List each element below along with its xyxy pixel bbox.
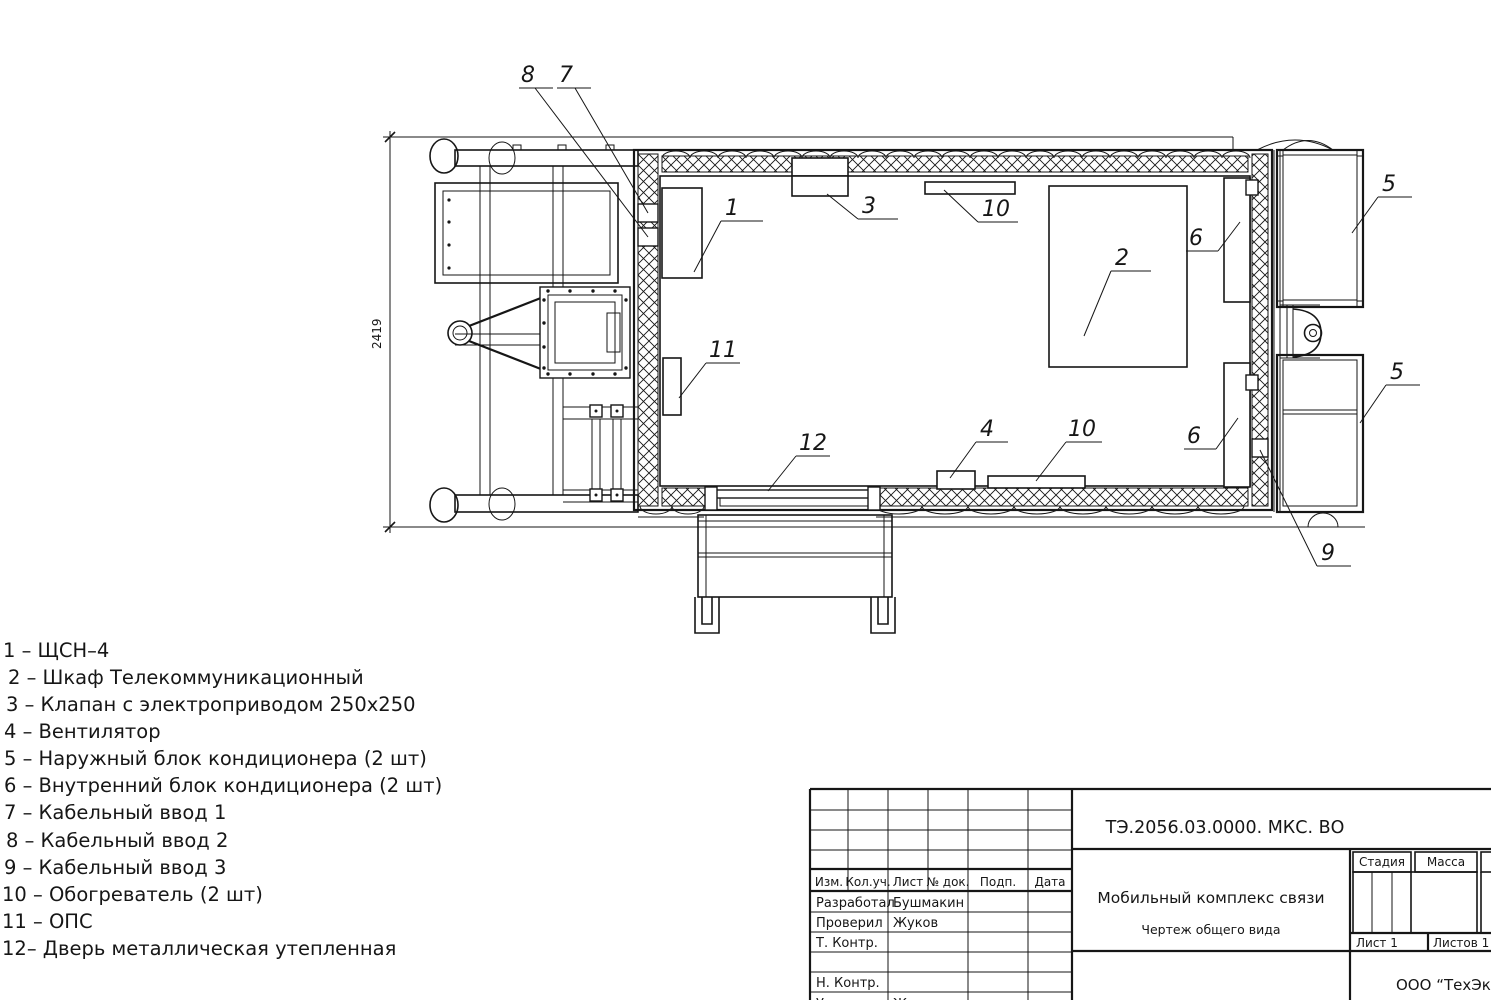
wheel-front-top — [430, 139, 458, 173]
svg-text:1: 1 — [725, 196, 739, 221]
cable-entry-3 — [1252, 439, 1268, 457]
wall-bottom-right — [873, 488, 1248, 506]
outdoor-ac-bottom — [1277, 355, 1363, 512]
callout-10-top: 10 — [944, 190, 1018, 222]
top-rail — [455, 150, 638, 166]
svg-text:6: 6 — [1189, 226, 1203, 251]
svg-text:12: 12 — [799, 431, 827, 456]
role-name: Жуков — [893, 916, 938, 931]
product-name: Мобильный комплекс связи — [1097, 889, 1324, 907]
role-label: Проверил — [816, 916, 883, 931]
dimension-2419: 2419 — [370, 131, 455, 533]
svg-text:5: 5 — [1382, 172, 1396, 197]
fire-alarm-ops — [663, 358, 681, 415]
svg-text:9: 9 — [1321, 541, 1335, 566]
general-view-drawing: 2419 — [0, 0, 1491, 1000]
legend-item: 1 – ЩСН–4 — [3, 639, 109, 662]
company-name: ООО “ТехЭксп — [1396, 976, 1491, 994]
valve-duct — [792, 158, 848, 176]
doc-number: ТЭ.2056.03.0000. МКС. ВО — [1105, 818, 1345, 838]
svg-text:6: 6 — [1187, 424, 1201, 449]
wheel-front-bottom — [430, 488, 458, 522]
callout-5-bottom: 5 — [1360, 360, 1420, 423]
power-board-schn4 — [662, 188, 702, 278]
stage-label: Стадия — [1359, 855, 1405, 869]
legend-item: 8 – Кабельный ввод 2 — [6, 829, 228, 852]
callout-3: 3 — [827, 194, 898, 219]
role-name: Бушмакин — [893, 896, 964, 911]
sheets-label: Листов 1 — [1433, 936, 1489, 950]
role-label: Т. Контр. — [815, 936, 878, 951]
col-podp: Подп. — [980, 875, 1016, 889]
wall-bottom-left — [662, 488, 707, 506]
legend-item: 10 – Обогреватель (2 шт) — [2, 883, 263, 906]
valve-electric — [792, 176, 848, 196]
doc-type: Чертеж общего вида — [1141, 922, 1280, 937]
svg-text:5: 5 — [1390, 360, 1404, 385]
indoor-ac-top — [1224, 178, 1250, 302]
heater-top — [925, 182, 1015, 194]
drawbar-hitch — [448, 287, 630, 378]
external-units — [1274, 141, 1363, 513]
dimension-label: 2419 — [370, 318, 384, 349]
col-doc: № док. — [927, 875, 970, 889]
insulated-door — [712, 490, 878, 498]
hitch-mount — [540, 287, 630, 378]
callout-4: 4 — [950, 417, 1008, 478]
role-label: Н. Контр. — [816, 976, 880, 991]
svg-text:4: 4 — [980, 417, 994, 442]
outdoor-ac-top — [1277, 150, 1363, 307]
legend-item: 5 – Наружный блок кондиционера (2 шт) — [4, 747, 427, 770]
frame-post-1 — [480, 166, 490, 495]
legend-item: 12– Дверь металлическая утепленная — [2, 937, 396, 960]
mass-label: Масса — [1427, 855, 1465, 869]
callout-10-bottom: 10 — [1036, 417, 1102, 481]
callout-11: 11 — [679, 338, 740, 398]
fan — [937, 471, 975, 489]
svg-text:11: 11 — [709, 338, 737, 363]
legend-item: 11 – ОПС — [2, 910, 93, 933]
legend-item: 7 – Кабельный ввод 1 — [4, 801, 226, 824]
callout-1: 1 — [694, 196, 763, 272]
title-block: Изм. Кол.уч. Лист № док. Подп. Дата Разр… — [810, 789, 1491, 1000]
callout-5-top: 5 — [1352, 172, 1412, 233]
legend-item: 9 – Кабельный ввод 3 — [4, 856, 226, 879]
interior-equipment — [662, 158, 1258, 489]
legend-item: 4 – Вентилятор — [4, 720, 161, 743]
telecom-cabinet — [1049, 186, 1187, 367]
hitch-eye — [448, 321, 472, 345]
heater-bottom — [988, 476, 1085, 488]
legend-list: 1 – ЩСН–4 2 – Шкаф Телекоммуникационный … — [2, 639, 442, 960]
wall-top — [662, 156, 1248, 172]
legend-item: 3 – Клапан с электроприводом 250х250 — [6, 693, 416, 716]
svg-text:2: 2 — [1115, 246, 1129, 271]
legend-item: 6 – Внутренний блок кондиционера (2 шт) — [4, 774, 442, 797]
callout-12: 12 — [768, 431, 830, 491]
sheet-label: Лист 1 — [1356, 936, 1398, 950]
col-list: Лист — [893, 875, 923, 889]
col-izm: Изм. — [815, 875, 843, 889]
svg-text:10: 10 — [1068, 417, 1096, 442]
col-data: Дата — [1034, 875, 1065, 889]
role-label: Разработал — [816, 896, 895, 911]
legend-item: 2 – Шкаф Телекоммуникационный — [8, 666, 364, 689]
svg-text:8: 8 — [521, 63, 535, 88]
svg-text:7: 7 — [559, 63, 573, 88]
front-panel — [435, 183, 618, 283]
svg-text:3: 3 — [862, 194, 876, 219]
door-lock-mechanism — [1280, 305, 1322, 358]
svg-text:10: 10 — [982, 197, 1010, 222]
lower-frame — [563, 405, 638, 502]
col-kol: Кол.уч. — [845, 875, 890, 889]
